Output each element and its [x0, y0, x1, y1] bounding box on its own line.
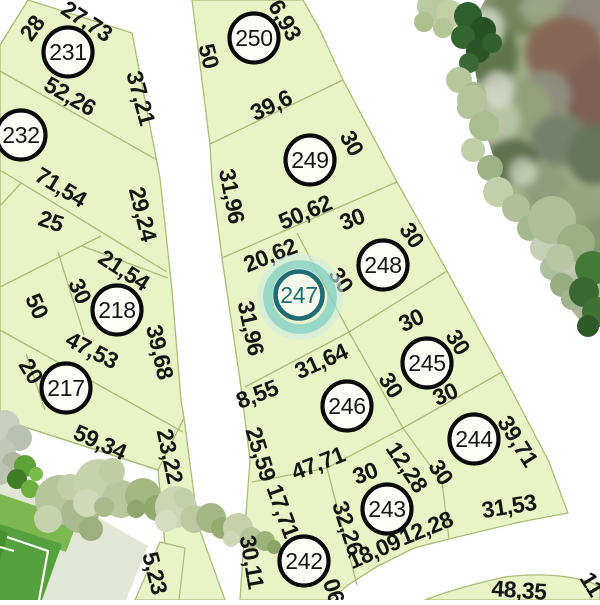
svg-text:231: 231: [49, 39, 86, 65]
svg-text:217: 217: [47, 375, 84, 401]
svg-text:48,35: 48,35: [491, 575, 548, 600]
svg-text:244: 244: [455, 426, 493, 452]
svg-text:243: 243: [368, 496, 405, 522]
svg-text:218: 218: [98, 297, 135, 323]
svg-text:250: 250: [235, 25, 272, 51]
svg-text:247: 247: [280, 282, 317, 308]
svg-text:248: 248: [364, 252, 401, 278]
svg-text:249: 249: [291, 147, 328, 173]
svg-text:245: 245: [408, 350, 445, 376]
svg-text:246: 246: [328, 393, 365, 419]
svg-text:232: 232: [2, 122, 39, 148]
svg-text:242: 242: [285, 548, 322, 574]
